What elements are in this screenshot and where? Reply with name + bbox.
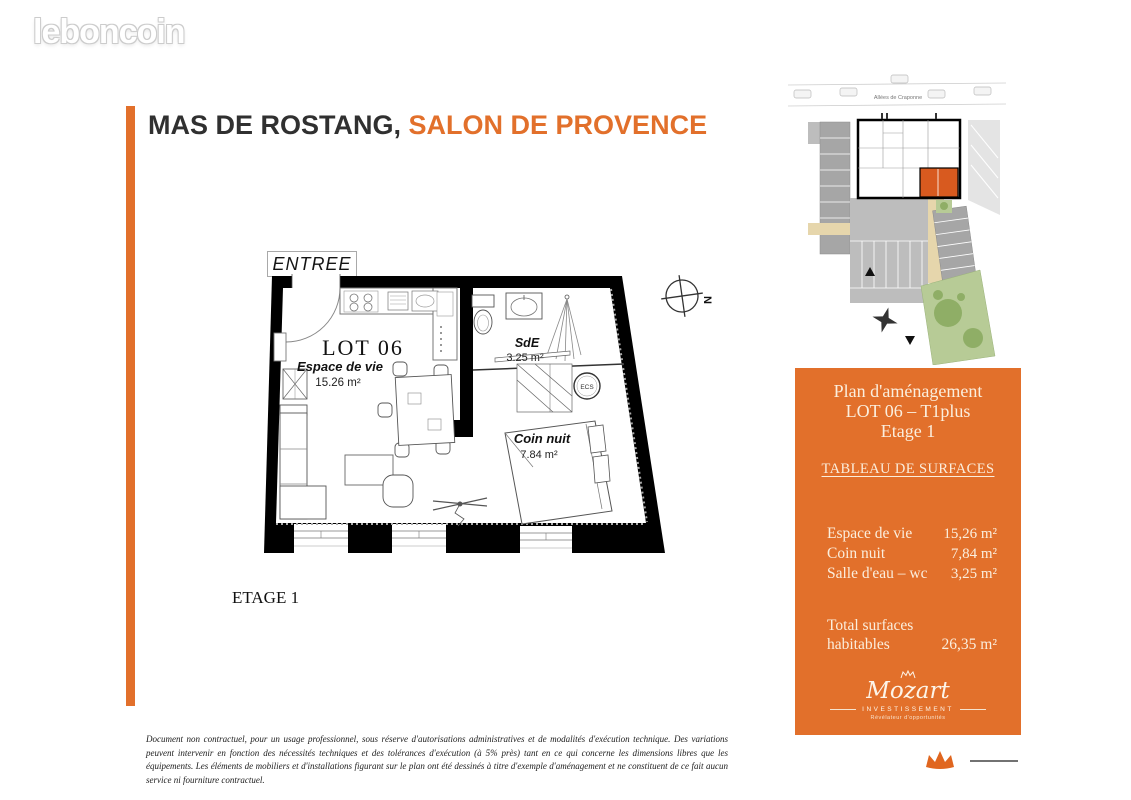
mozart-subtitle: INVESTISSEMENT	[862, 706, 954, 713]
footer-logo	[918, 744, 1028, 778]
lot-label: LOT 06	[322, 335, 404, 360]
table-title: TABLEAU DE SURFACES	[795, 461, 1021, 478]
page-title: MAS DE ROSTANG, SALON DE PROVENCE	[148, 110, 707, 141]
row-label: Espace de vie	[827, 524, 912, 543]
drainer	[388, 292, 408, 310]
street-label: Allées de Craponne	[874, 95, 922, 101]
floor-plan: LOT 06 Espace de vie 15.26 m² SdE 3.25 m…	[250, 243, 680, 578]
bath-sink	[506, 293, 542, 319]
panel-heading-line1: Plan d'aménagement	[795, 381, 1021, 401]
neighbour-building	[968, 120, 1000, 215]
storage-hatch	[517, 364, 572, 412]
highlighted-unit	[920, 168, 958, 197]
accent-bar	[126, 106, 135, 706]
room-area-bath: 3.25 m²	[506, 352, 544, 364]
surface-panel: Plan d'aménagement LOT 06 – T1plus Etage…	[795, 368, 1021, 735]
leboncoin-logo: leboncoin	[33, 13, 185, 52]
surface-table: Espace de vie 15,26 m² Coin nuit 7,84 m²…	[795, 524, 1021, 584]
row-label: Coin nuit	[827, 544, 885, 563]
room-name-bedroom: Coin nuit	[514, 431, 571, 446]
compass: N	[653, 268, 717, 326]
room-name-bath: SdE	[515, 336, 540, 350]
panel-heading: Plan d'aménagement LOT 06 – T1plus Etage…	[795, 368, 1021, 441]
rule-left	[830, 709, 856, 710]
mozart-tagline: Révélateur d'opportunités	[795, 715, 1021, 721]
pillow	[588, 425, 606, 453]
window	[294, 524, 348, 554]
site-plan: Allées de Craponne	[788, 73, 1013, 365]
entrance-gap	[292, 273, 340, 289]
row-label: Salle d'eau – wc	[827, 564, 928, 583]
building	[858, 113, 960, 198]
mozart-logo: Mozart INVESTISSEMENT Révélateur d'oppor…	[795, 670, 1021, 721]
armchair	[383, 475, 413, 507]
window	[392, 524, 446, 554]
total-row: Total surfaces habitables 26,35 m²	[795, 616, 1021, 654]
row-value: 7,84 m²	[951, 545, 997, 564]
stove-burner	[350, 294, 358, 302]
row-value: 15,26 m²	[943, 525, 997, 544]
table-row: Salle d'eau – wc 3,25 m²	[827, 564, 997, 584]
panel-heading-line3: Etage 1	[795, 421, 1021, 441]
radiator	[274, 333, 286, 361]
row-value: 3,25 m²	[951, 565, 997, 584]
room-area-bedroom: 7.84 m²	[520, 449, 558, 461]
title-secondary: SALON DE PROVENCE	[409, 110, 708, 140]
total-value: 26,35 m²	[942, 635, 997, 654]
room-area-living: 15.26 m²	[315, 377, 361, 389]
room-name-living: Espace de vie	[297, 359, 383, 374]
flyer-page: leboncoin MAS DE ROSTANG, SALON DE PROVE…	[0, 0, 1131, 800]
table-row: Espace de vie 15,26 m²	[827, 524, 997, 544]
window	[520, 526, 572, 556]
disclaimer-text: Document non contractuel, pour un usage …	[146, 733, 728, 787]
etage-label: ETAGE 1	[232, 588, 299, 608]
panel-heading-line2: LOT 06 – T1plus	[795, 401, 1021, 421]
total-label: Total surfaces habitables	[827, 616, 937, 654]
footer-crown-icon	[926, 751, 954, 769]
title-primary: MAS DE ROSTANG,	[148, 110, 401, 140]
mozart-subtitle-row: INVESTISSEMENT	[795, 706, 1021, 713]
pillow	[593, 455, 610, 483]
compass-north-label: N	[701, 296, 713, 304]
table-row: Coin nuit 7,84 m²	[827, 544, 997, 564]
ecs-label: ECS	[580, 384, 594, 391]
mozart-name: Mozart	[795, 679, 1021, 703]
rule-right	[960, 709, 986, 710]
